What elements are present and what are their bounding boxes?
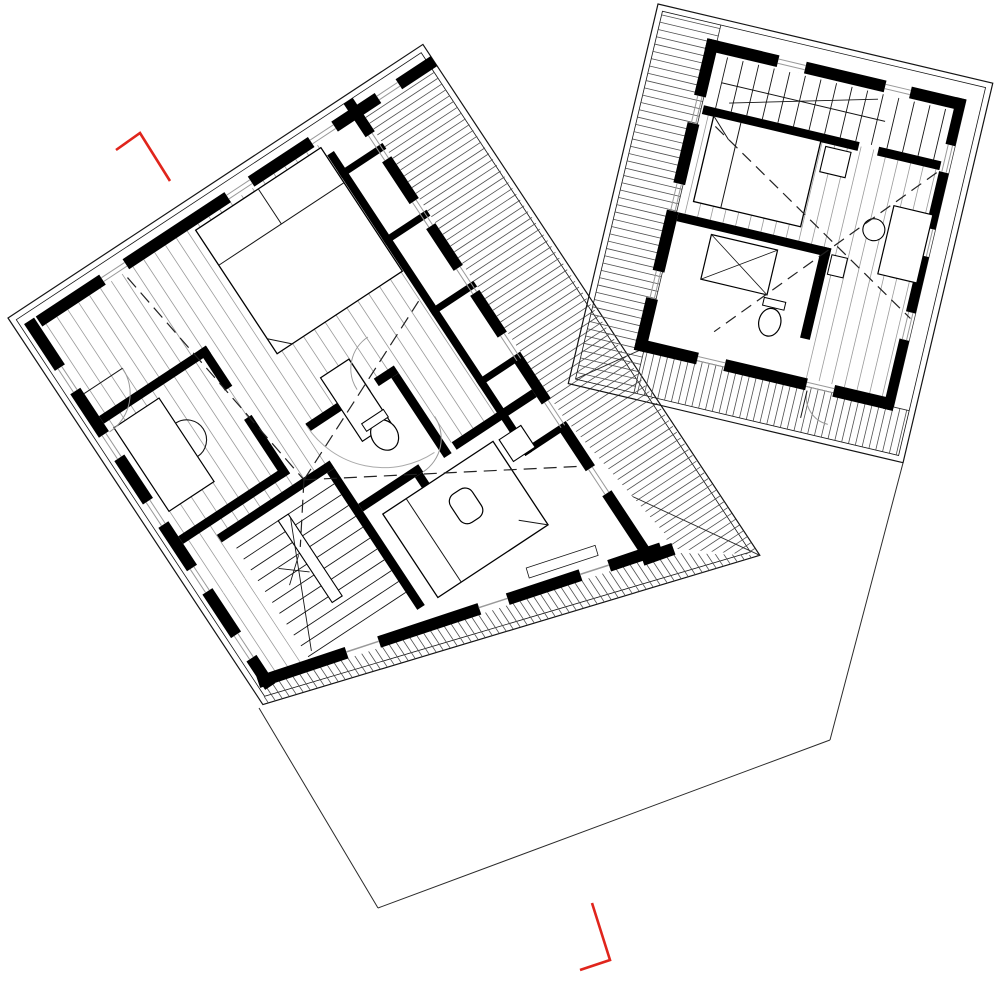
small-building — [568, 4, 992, 463]
site-line-right — [830, 463, 903, 740]
site-line-bottom — [378, 740, 830, 908]
floor-plan-drawing — [0, 0, 998, 985]
door-leaf-terrace — [801, 391, 807, 418]
table-round — [861, 216, 887, 242]
wall-top — [36, 275, 106, 327]
wall-bottom — [832, 385, 895, 411]
section-marker-top — [116, 133, 170, 181]
bathroom-wall — [198, 346, 232, 391]
door-leaf-entrance — [84, 368, 122, 393]
window-glazing-bottom — [580, 558, 609, 581]
wall-left — [673, 122, 699, 185]
large-building — [8, 44, 760, 829]
floor-plan-canvas — [0, 0, 998, 985]
site-line-left — [259, 708, 378, 908]
vanity — [114, 398, 214, 511]
section-marker-bottom — [580, 903, 610, 970]
nightstand — [820, 146, 851, 177]
